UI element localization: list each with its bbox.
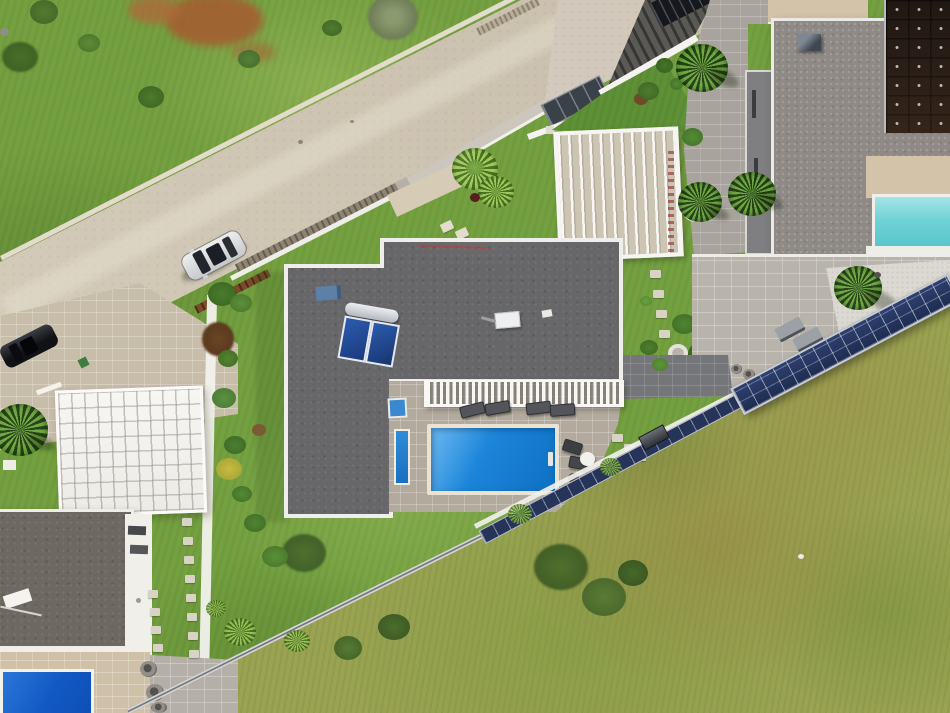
shower-pad-blue [387, 398, 407, 419]
bush [638, 82, 659, 100]
stepping-stone [612, 434, 623, 442]
pool-edge-strip [866, 246, 950, 254]
roof-vent-box [797, 34, 821, 51]
bush [218, 350, 238, 367]
facade-light [136, 598, 141, 603]
manhole [298, 140, 303, 144]
stepping-stone [150, 608, 160, 616]
stepping-stone [650, 270, 661, 278]
stepping-stone [184, 556, 194, 564]
round-pot [731, 364, 742, 374]
bush [230, 294, 252, 312]
left-house-roof [0, 509, 134, 656]
stepping-stone [188, 632, 198, 640]
stepping-stone [183, 537, 193, 545]
bush [334, 636, 362, 660]
sun-lounger [550, 403, 576, 417]
bush [138, 86, 164, 108]
ground-light [874, 272, 881, 278]
stepping-stone [653, 290, 664, 298]
stepping-stone [148, 590, 158, 598]
patio-edge-white [692, 254, 950, 257]
spiky-grass [206, 600, 226, 617]
bush [640, 296, 652, 306]
stepping-stone [151, 626, 161, 634]
car-sunroof [19, 336, 39, 357]
bush [30, 0, 58, 24]
left-pool [0, 669, 94, 713]
utility-box [3, 460, 16, 470]
lap-pool-strip [394, 429, 410, 485]
stepping-stone [182, 518, 192, 526]
bush [618, 560, 648, 586]
bush [244, 514, 266, 532]
right-pool [872, 194, 950, 252]
spiky-grass [224, 618, 256, 646]
left-house-facade [125, 514, 152, 656]
white-speck [798, 554, 804, 559]
stepping-stone [189, 650, 199, 658]
ac-unit [494, 311, 520, 329]
bush [652, 358, 668, 371]
spiky-grass [600, 458, 621, 476]
manhole [350, 120, 354, 123]
hedge-strip [668, 150, 674, 252]
pergola-slatted [424, 380, 624, 407]
bush [2, 42, 38, 72]
main-pool [427, 424, 559, 495]
bush [224, 436, 246, 454]
rock [0, 28, 9, 36]
bush [640, 340, 658, 355]
wing-vent-slot [752, 90, 756, 118]
stepping-stone [186, 594, 196, 602]
bush [212, 388, 236, 408]
facade-window [128, 526, 146, 536]
bush [282, 534, 326, 572]
bush [238, 50, 260, 68]
bush-yellow [216, 458, 242, 480]
roof-skylight-blue [316, 285, 342, 301]
right-pool-deck [866, 156, 950, 198]
round-pot [140, 661, 157, 677]
tree-well [252, 424, 266, 436]
palm-tree [478, 176, 514, 208]
stepping-stone [153, 644, 163, 652]
stepping-stone [659, 330, 670, 338]
stepping-stone [187, 613, 197, 621]
plant-pot [470, 193, 480, 202]
bush [534, 544, 588, 590]
aerial-photo [0, 0, 950, 713]
round-pot [151, 702, 167, 713]
rooftop-pv-array [884, 0, 950, 133]
solar-water-heater [337, 302, 402, 367]
bush [322, 20, 342, 36]
mow-strip [256, 272, 288, 522]
stepping-stone [656, 310, 667, 318]
bush [682, 128, 703, 146]
bush [232, 486, 252, 502]
bush [378, 614, 410, 640]
bush [656, 58, 673, 73]
bush [466, 160, 484, 175]
stepping-stone [185, 575, 195, 583]
bush [78, 34, 100, 52]
bush [262, 546, 288, 567]
spiky-grass [508, 504, 532, 524]
slatted-canopy-house [55, 385, 207, 517]
facade-window [130, 545, 148, 555]
bush [582, 578, 626, 616]
pool-ladder [548, 452, 553, 466]
spiky-grass [284, 630, 310, 652]
